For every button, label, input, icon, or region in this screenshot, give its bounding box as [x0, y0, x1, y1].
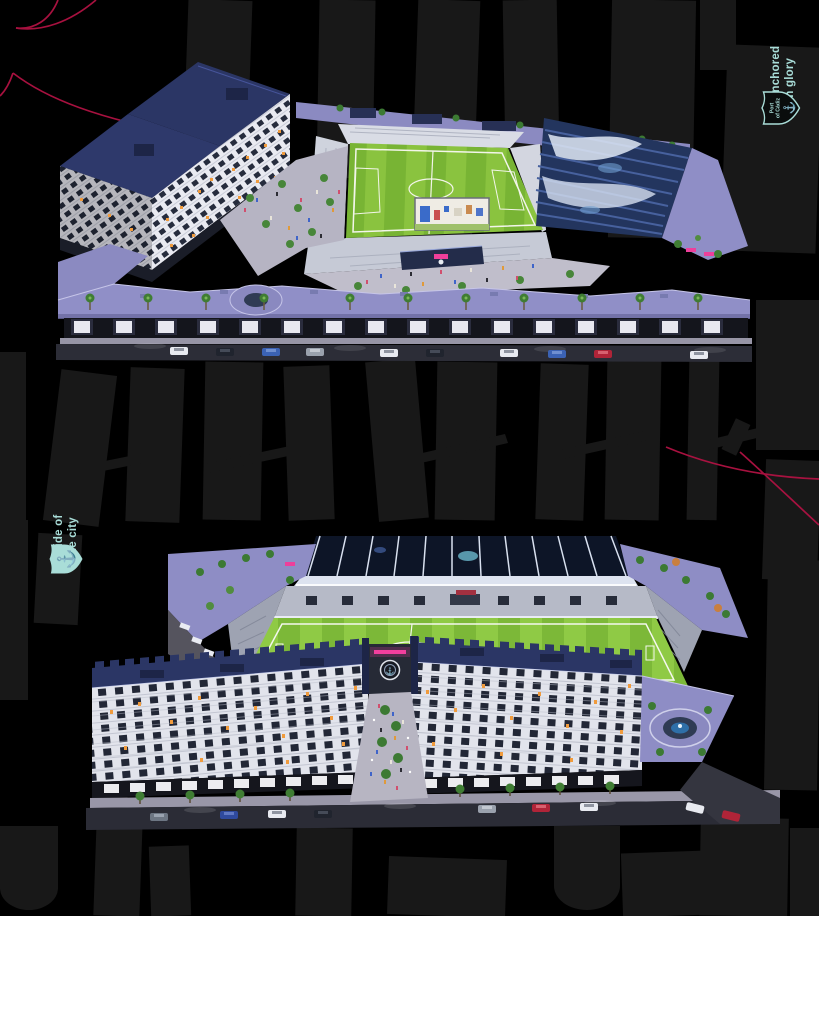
stand-wall [274, 586, 658, 619]
tagline-pride: Pride of the city [21, 499, 111, 529]
neon-sign [374, 650, 406, 654]
courtyard-wing [640, 676, 734, 762]
render-top-aerial-stadium-complex [50, 48, 760, 368]
crest-anchor-icon: ⚓ [386, 667, 395, 676]
svg-text:of Cádiz: of Cádiz [776, 98, 782, 119]
entrance-gate: ⚓ [362, 636, 418, 694]
page-footer-whitespace [0, 916, 819, 1024]
storefront-row-top [64, 318, 748, 338]
render-bottom-stadium-residences: ⚓ [80, 520, 780, 830]
residential-slab-left [92, 638, 368, 798]
page: ⚓ [0, 0, 819, 1024]
anchor-crest-solid-icon: ⚓ [48, 540, 84, 578]
anchor-crest-outline-icon: Port of Cádiz ⚓ [760, 86, 802, 130]
residential-slab-right [410, 636, 642, 794]
tagline-anchored: Anchored in glory [738, 41, 819, 71]
anchor-icon: ⚓ [56, 548, 76, 569]
giant-screen [415, 198, 489, 230]
anchor-icon: ⚓ [783, 101, 796, 115]
street-top [56, 338, 752, 362]
hero-section: ⚓ [0, 0, 819, 916]
main-stand-solar-roof [294, 536, 638, 586]
